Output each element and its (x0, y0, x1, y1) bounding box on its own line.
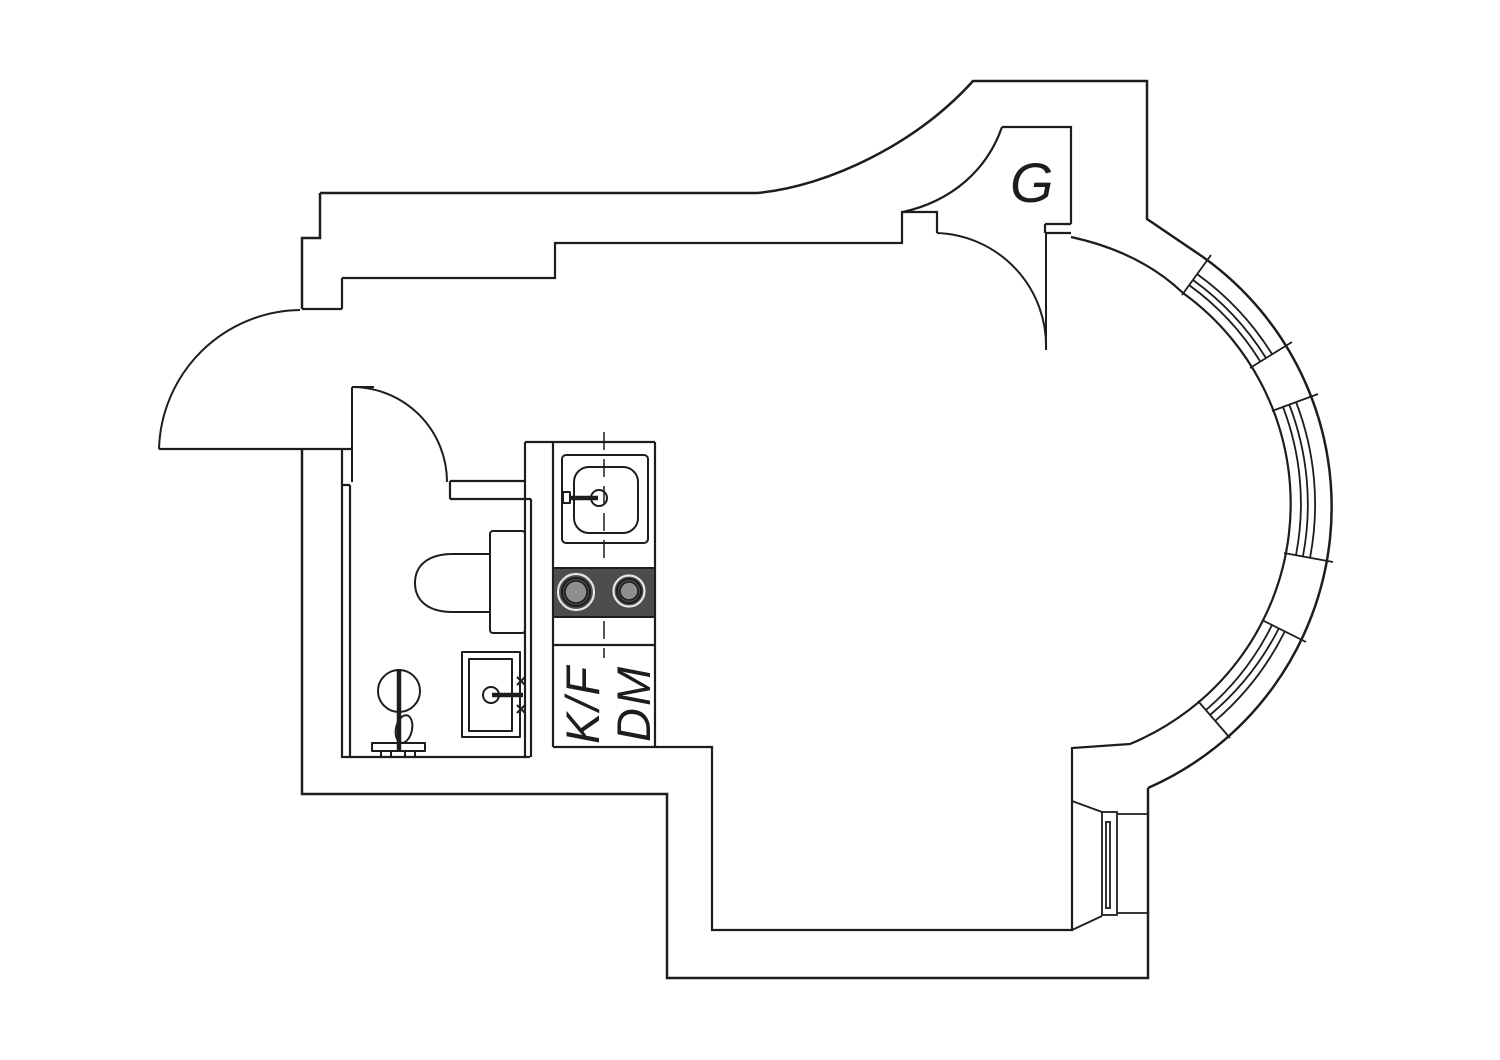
kitchen-sink (562, 455, 648, 543)
burner-right-core (620, 582, 638, 600)
toilet-tank (490, 531, 525, 633)
bathroom (342, 387, 531, 757)
shower-mixer (372, 669, 425, 757)
outer-wall-top-left-step (302, 193, 320, 309)
bay-window-3 (1206, 625, 1285, 721)
closet-g: G (903, 127, 1071, 350)
closet-label: G (1010, 151, 1054, 214)
window-jamb-top (1072, 801, 1102, 812)
window-pane (1106, 822, 1110, 908)
fridge-freezer-label: K/F (556, 665, 609, 744)
burner-left-core (565, 581, 587, 603)
bathroom-door-leaf (352, 387, 374, 482)
outer-wall-bottom-right (302, 449, 1148, 978)
bay-outer-wall (1148, 257, 1332, 788)
window-jamb-bottom (1072, 916, 1102, 930)
toilet-bowl (415, 554, 490, 612)
outer-walls (302, 81, 1332, 978)
bay-windows (1182, 255, 1333, 738)
inner-walls (159, 212, 1291, 930)
wash-basin (462, 652, 525, 737)
entry-door (159, 310, 300, 449)
dishwasher-label: DM (607, 665, 660, 742)
closet-door-swing-arc (937, 233, 1046, 350)
kitchen: K/F DM (525, 432, 660, 747)
entry-door-swing-arc (159, 310, 300, 449)
inner-wall-right-and-bottom (655, 237, 1291, 930)
toilet (415, 531, 525, 633)
inner-wall-top (342, 212, 937, 278)
floor-plan-drawing: G (0, 0, 1500, 1060)
sink-faucet-base (563, 492, 570, 503)
bottom-right-window (1072, 801, 1148, 930)
cooktop (553, 568, 655, 617)
bay-window-jambs (1182, 255, 1333, 738)
shower-handle (393, 714, 414, 745)
inner-wall-left-lower (342, 449, 530, 757)
bathroom-left-wall (342, 485, 350, 757)
bathroom-door-swing-arc (352, 387, 447, 482)
floor-plan-page: G (0, 0, 1500, 1060)
bay-window-1 (1189, 274, 1272, 361)
bathroom-top-wall (450, 481, 531, 499)
closet-door-jamb-right (1045, 224, 1071, 233)
window-sill-lines (1117, 814, 1148, 913)
